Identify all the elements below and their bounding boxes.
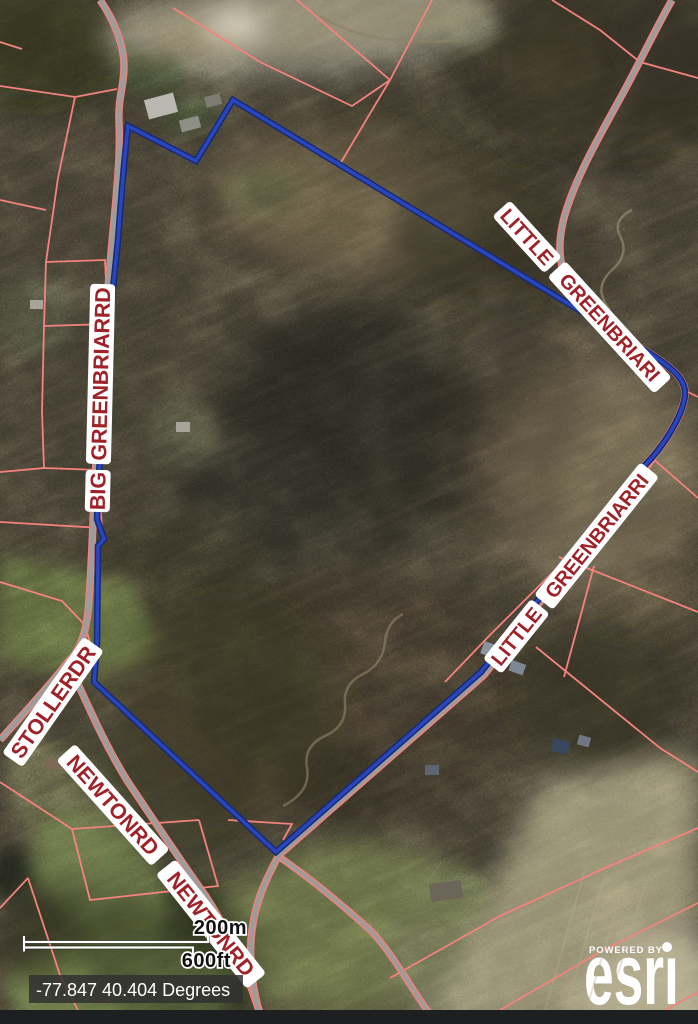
- svg-text:200m: 200m: [194, 917, 247, 939]
- svg-text:-77.847 40.404 Degrees: -77.847 40.404 Degrees: [36, 980, 230, 1000]
- svg-text:GREENBRIARRD: GREENBRIARRD: [87, 287, 115, 461]
- svg-text:600ft: 600ft: [182, 950, 231, 972]
- svg-text:BIG: BIG: [86, 472, 111, 511]
- svg-text:esrı: esrı: [584, 927, 679, 1023]
